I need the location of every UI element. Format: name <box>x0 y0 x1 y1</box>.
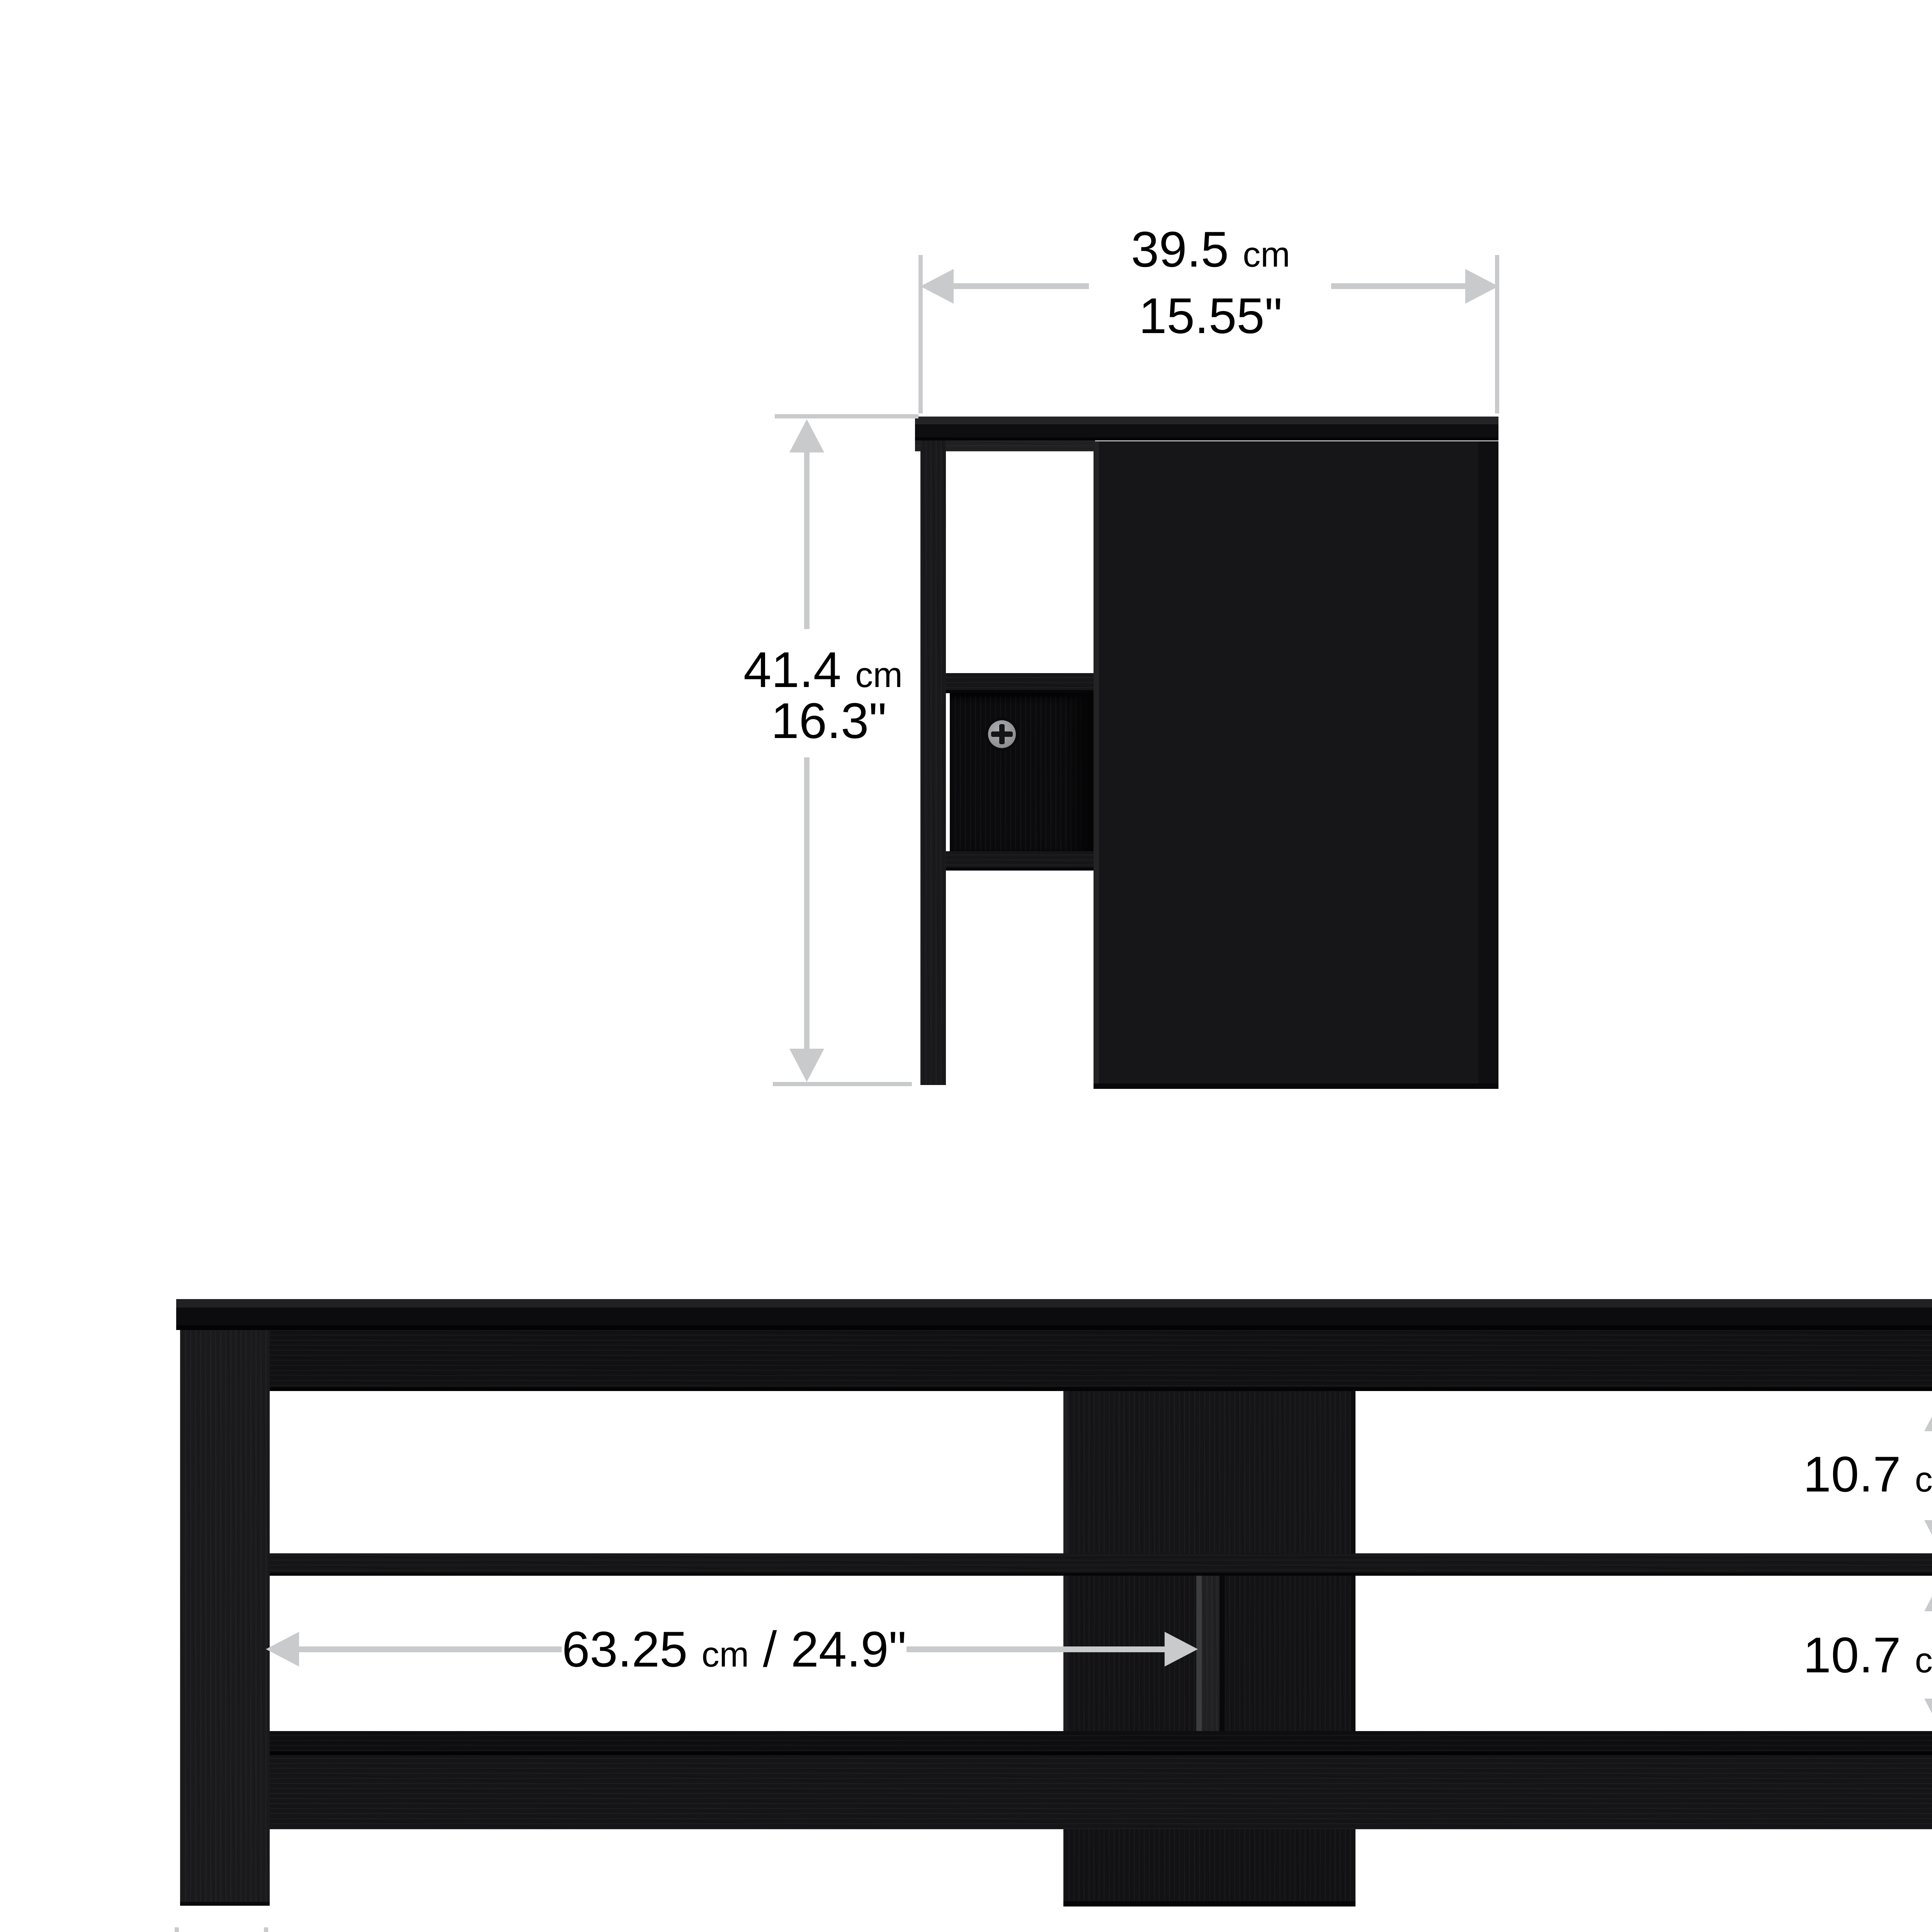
furniture-dimension-diagram: 39.5 cm 15.55" 41.4 cm 16.3" <box>0 0 1932 1932</box>
front-center-panel-upper <box>1063 1391 1355 1553</box>
arrow-down-icon <box>1924 1520 1932 1553</box>
lower-opening-height-label: 10.7 cm / 4.2" <box>1754 1626 1932 1689</box>
arrow-right-icon <box>1165 1632 1198 1667</box>
inner-width-extension-line-left <box>264 1927 268 1932</box>
front-top-rail <box>270 1330 1932 1391</box>
arrow-left-icon <box>266 1632 299 1667</box>
arrow-up-icon <box>1924 1398 1932 1431</box>
separator: / <box>763 1621 777 1677</box>
left-opening-width-label: 63.25 cm / 24.9" <box>541 1620 927 1684</box>
front-bottom-rail <box>270 1751 1932 1829</box>
overall-width-extension-line-left <box>175 1927 179 1932</box>
front-middle-shelf <box>270 1553 1932 1576</box>
front-top-panel <box>176 1299 1932 1330</box>
front-leg-left <box>180 1330 270 1906</box>
front-center-pedestal <box>1063 1829 1355 1906</box>
arrow-down-icon <box>1924 1699 1932 1732</box>
upper-opening-height-label: 10.7 cm / 4.2" <box>1754 1445 1932 1509</box>
left-opening-dimension-line-left <box>299 1646 562 1652</box>
front-center-divider <box>1196 1576 1219 1731</box>
left-opening-dimension-line-right <box>906 1646 1165 1652</box>
front-view: 10.7 cm / 4.2" 10.7 cm / 4.2" 63.25 cm /… <box>0 0 1932 1932</box>
arrow-up-icon <box>1924 1578 1932 1611</box>
front-bottom-shelf-edge <box>270 1731 1932 1751</box>
